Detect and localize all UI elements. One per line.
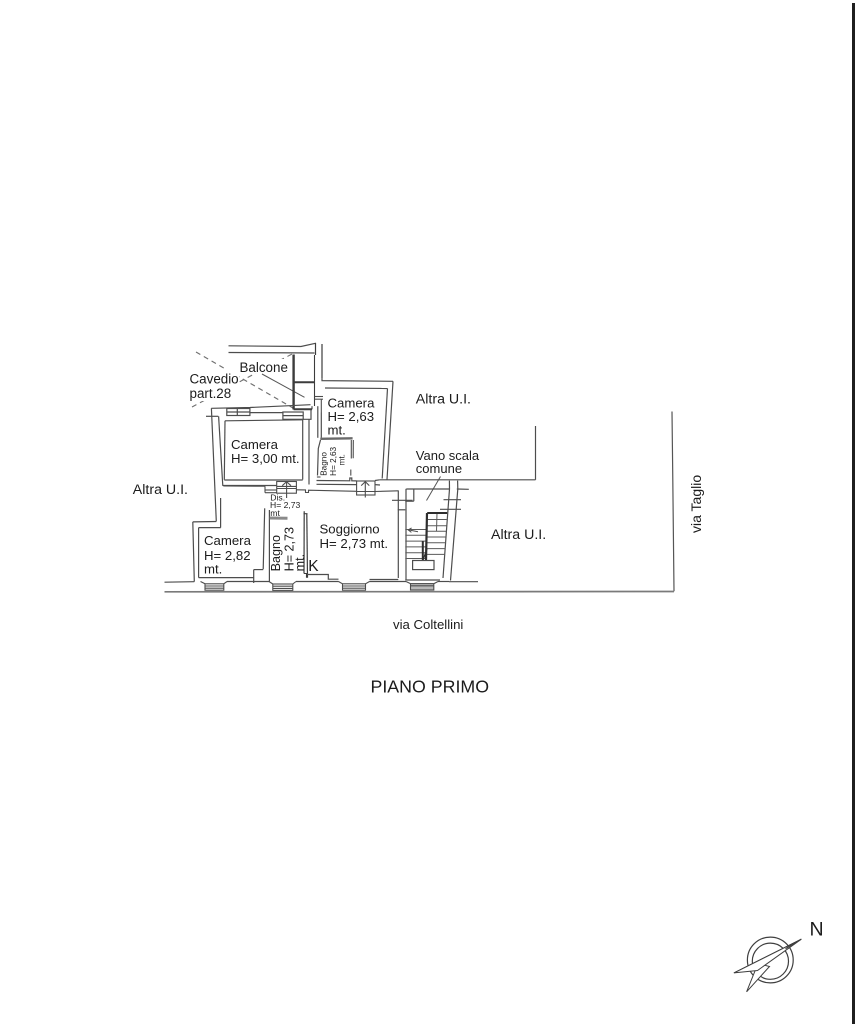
svg-text:Altra U.I.: Altra U.I. [416,391,471,407]
svg-text:Bagno: Bagno [320,452,329,476]
svg-text:via Coltellini: via Coltellini [393,617,463,632]
svg-text:H= 3,00 mt.: H= 3,00 mt. [231,451,300,466]
svg-text:mt.: mt. [337,454,346,465]
svg-text:Altra U.I.: Altra U.I. [133,482,188,498]
svg-text:comune: comune [416,461,462,476]
svg-text:mt.: mt. [293,554,307,572]
svg-text:N: N [810,919,824,941]
svg-text:Balcone: Balcone [240,360,288,375]
svg-text:H= 2,73 mt.: H= 2,73 mt. [320,536,389,551]
svg-text:mt.: mt. [328,422,346,437]
svg-text:Cavedio: Cavedio [190,372,239,387]
svg-text:mt.: mt. [204,562,222,577]
svg-text:Camera: Camera [231,437,279,452]
svg-text:part.28: part.28 [190,386,232,401]
svg-text:via Taglio: via Taglio [688,475,704,533]
svg-text:mt: mt [270,508,280,518]
svg-text:K: K [308,558,319,575]
svg-text:Bagno: Bagno [269,535,283,571]
svg-text:Soggiorno: Soggiorno [320,521,380,536]
svg-text:Camera: Camera [204,533,252,548]
svg-text:PIANO PRIMO: PIANO PRIMO [371,677,490,697]
svg-text:Altra U.I.: Altra U.I. [491,527,546,543]
